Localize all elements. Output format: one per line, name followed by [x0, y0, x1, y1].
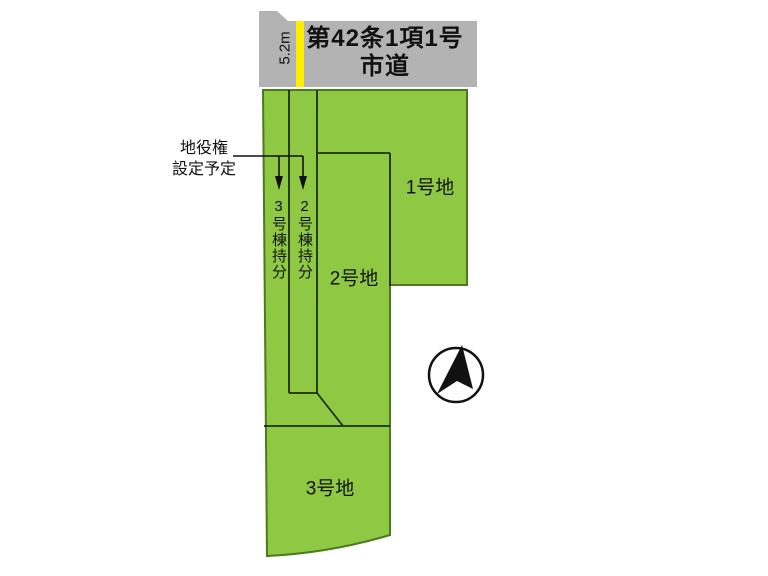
easement-annotation-line2: 設定予定	[150, 159, 258, 180]
easement-annotation-line1: 地役権	[150, 138, 258, 159]
strip2-share-label: 2号棟持分	[294, 198, 315, 290]
easement-annotation: 地役権 設定予定	[150, 138, 258, 180]
road-name-line1: 第42条1項1号	[292, 25, 478, 53]
site-plan-canvas: 第42条1項1号 市道 5.2m 地役権 設定予定 3号棟持分 2号棟持分 1号…	[0, 0, 768, 576]
parcel-area-shape	[263, 90, 467, 556]
lot1-label: 1号地	[406, 173, 455, 200]
road-width-label: 5.2m	[277, 31, 294, 64]
strip3-share-label: 3号棟持分	[268, 198, 289, 290]
north-arrow-icon	[429, 345, 483, 402]
lot2-label: 2号地	[330, 264, 379, 291]
lot3-label: 3号地	[306, 474, 355, 501]
road-name-label: 第42条1項1号 市道	[292, 25, 478, 81]
site-plan-drawing	[0, 0, 768, 576]
road-name-line2: 市道	[292, 53, 478, 81]
